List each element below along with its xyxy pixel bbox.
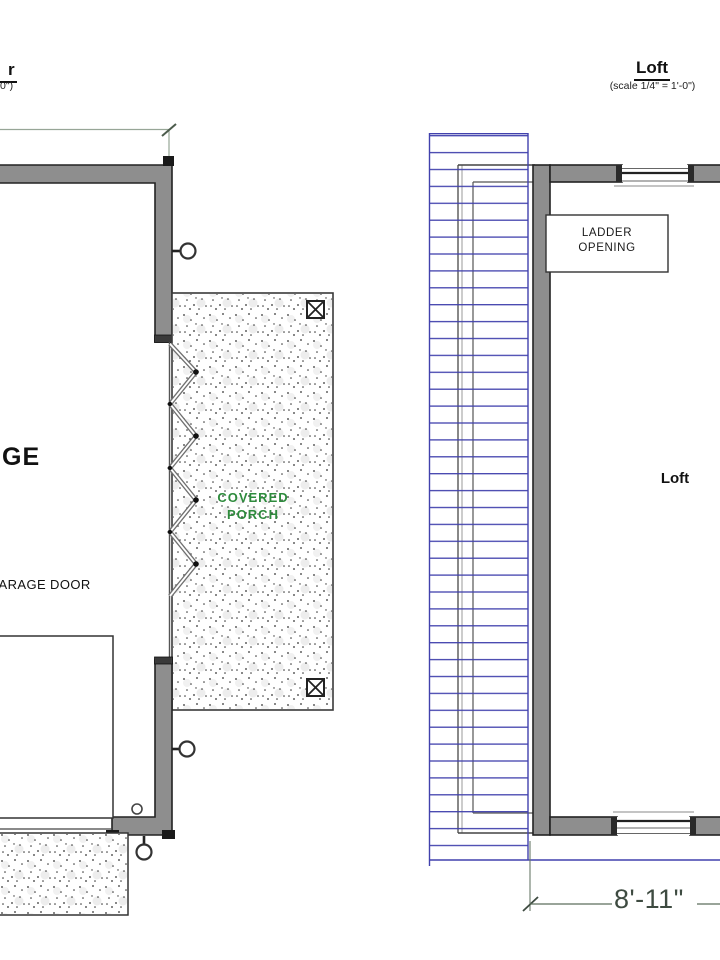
downspout-icon <box>137 836 152 860</box>
downspout-icon <box>172 742 195 757</box>
porch-post-icon <box>307 301 324 318</box>
concrete-apron <box>0 833 128 915</box>
ladder-opening-label: LADDER OPENING <box>558 226 656 256</box>
window-icon <box>611 812 696 835</box>
main-floor-scale: 0") <box>0 80 13 92</box>
porch-post-icon <box>307 679 324 696</box>
dimension-line-top <box>0 124 176 161</box>
door-jamb-cap <box>162 830 175 839</box>
covered-porch-label: COVERED PORCH <box>209 489 297 523</box>
downspout-icon <box>172 244 196 259</box>
garage-room-label: GE <box>2 443 40 472</box>
floor-plan-drawing <box>0 0 720 960</box>
wall-end-cap <box>155 335 173 343</box>
wall-corner-cap <box>163 156 174 166</box>
dimension-width-label: 8'-11" <box>614 884 684 915</box>
garage-wall-upper <box>0 165 172 342</box>
loft-scale: (scale 1/4" = 1'-0") <box>580 80 720 92</box>
wall-end-cap <box>155 657 173 664</box>
floor-drain-icon <box>132 804 142 814</box>
loft-title: Loft <box>592 58 712 81</box>
garage-door-label: GARAGE DOOR <box>0 577 91 592</box>
loft-room-label: Loft <box>645 470 705 487</box>
window-icon <box>614 165 694 186</box>
garage-door-panel <box>0 636 113 818</box>
